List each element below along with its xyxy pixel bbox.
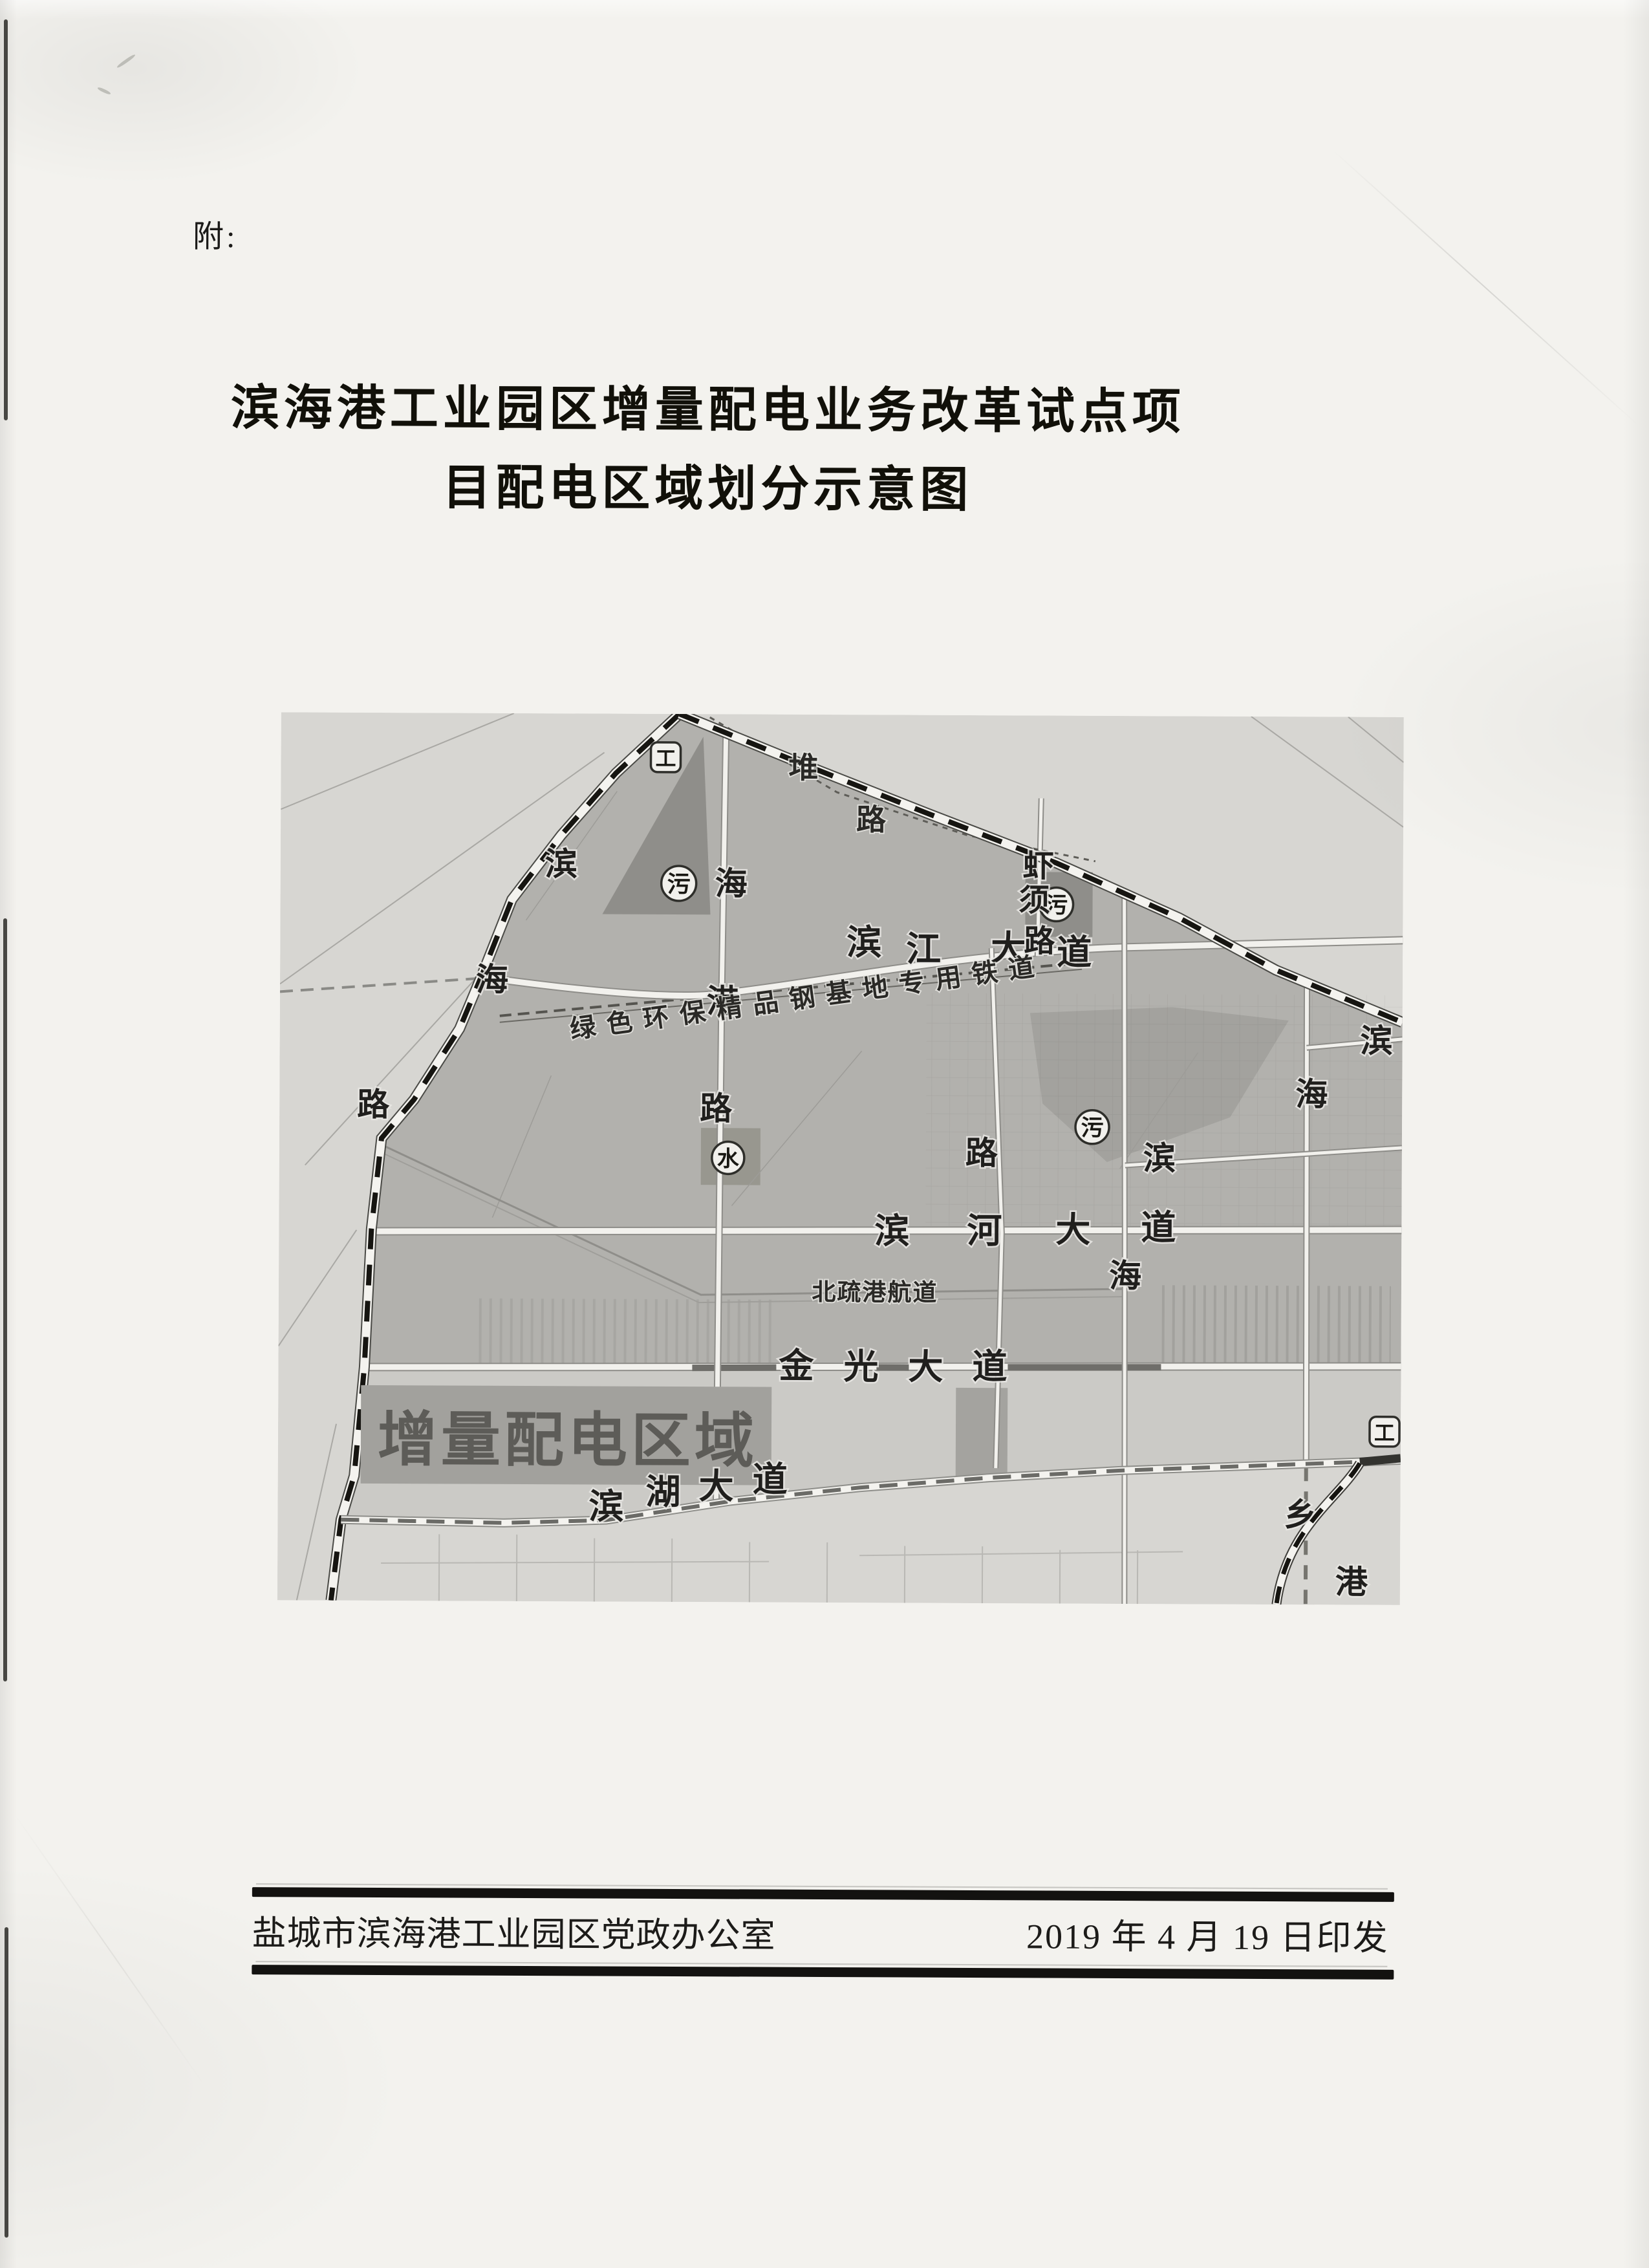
label-char: 道 bbox=[753, 1459, 788, 1500]
label-char: 须 bbox=[1018, 882, 1050, 918]
label-char: 虾 bbox=[1023, 848, 1054, 884]
document-title-line2: 目配电区域划分示意图 bbox=[197, 448, 1219, 532]
label-char: 湖 bbox=[645, 1471, 680, 1512]
label-char: 路 bbox=[856, 802, 887, 837]
document-title-line1: 滨海港工业园区增量配电业务改革试点项 bbox=[197, 369, 1220, 453]
label-char: 滨 bbox=[545, 845, 577, 883]
incremental-area-label: 增量配电区域 bbox=[378, 1405, 758, 1476]
badge-char: 工 bbox=[655, 746, 676, 771]
label-char: 光 bbox=[843, 1346, 878, 1387]
label-char: 大 bbox=[1055, 1209, 1090, 1250]
label-char: 江 bbox=[906, 929, 941, 969]
label-char: 河 bbox=[967, 1210, 1002, 1251]
sewage-plant-badge: 污 bbox=[1075, 1110, 1109, 1144]
document-title: 滨海港工业园区增量配电业务改革试点项 目配电区域划分示意图 bbox=[197, 369, 1219, 532]
label-char: 滨 bbox=[874, 1211, 909, 1251]
footer-rule-bottom bbox=[252, 1965, 1394, 1980]
label-char: 道 bbox=[1057, 932, 1092, 973]
label-char: 港 bbox=[1335, 1563, 1368, 1601]
dark-road-segment bbox=[1360, 1458, 1401, 1462]
label-char: 大 bbox=[908, 1346, 943, 1387]
label-char: 海 bbox=[715, 865, 748, 902]
label-char: 金 bbox=[778, 1345, 814, 1386]
document-footer: 盐城市滨海港工业园区党政办公室 2019 年 4 月 19 日印发 bbox=[252, 1873, 1394, 1878]
water-plant-badge: 水 bbox=[712, 1141, 744, 1174]
badge-char: 工 bbox=[1374, 1421, 1395, 1445]
sewage-plant-badge: 污 bbox=[662, 866, 696, 901]
label-char: 海 bbox=[476, 961, 508, 999]
industry-badge: 工 bbox=[651, 742, 680, 772]
label-char: 道 bbox=[972, 1346, 1007, 1387]
footer-rule-top bbox=[252, 1887, 1394, 1902]
footer-issuer: 盐城市滨海港工业园区党政办公室 bbox=[252, 1906, 775, 1958]
label-south-lu: 路 bbox=[965, 1134, 998, 1172]
label-char: 堆 bbox=[788, 750, 818, 785]
scanned-page: 附: 滨海港工业园区增量配电业务改革试点项 目配电区域划分示意图 bbox=[0, 0, 1649, 2268]
badge-char: 水 bbox=[717, 1146, 740, 1172]
distribution-area-map: 增量配电区域 污 污 污 bbox=[277, 712, 1404, 1605]
map-canvas: 增量配电区域 污 污 污 bbox=[277, 712, 1404, 1605]
label-char: 路 bbox=[357, 1086, 390, 1123]
label-char: 海 bbox=[1295, 1075, 1328, 1113]
parcel-texture bbox=[1158, 1285, 1391, 1368]
badge-char: 污 bbox=[1081, 1116, 1103, 1141]
label-stub-bin: 滨 bbox=[1143, 1139, 1176, 1177]
attachment-marker: 附: bbox=[193, 211, 238, 256]
label-char: 滨 bbox=[588, 1486, 623, 1527]
label-stub-bin: 滨 bbox=[1361, 1022, 1393, 1060]
label-mid-hai: 海 bbox=[1109, 1257, 1141, 1295]
label-char: 道 bbox=[1141, 1207, 1176, 1248]
label-char: 乡 bbox=[1284, 1496, 1316, 1533]
badge-char: 污 bbox=[667, 871, 691, 898]
label-char: 滨 bbox=[846, 922, 881, 963]
label-channel: 北疏港航道 bbox=[812, 1278, 938, 1306]
parcel-texture bbox=[472, 1299, 776, 1365]
footer-print-date: 2019 年 4 月 19 日印发 bbox=[1026, 1907, 1394, 1960]
industry-badge: 工 bbox=[1370, 1417, 1399, 1447]
label-char: 路 bbox=[700, 1090, 733, 1127]
label-char: 大 bbox=[698, 1466, 733, 1507]
